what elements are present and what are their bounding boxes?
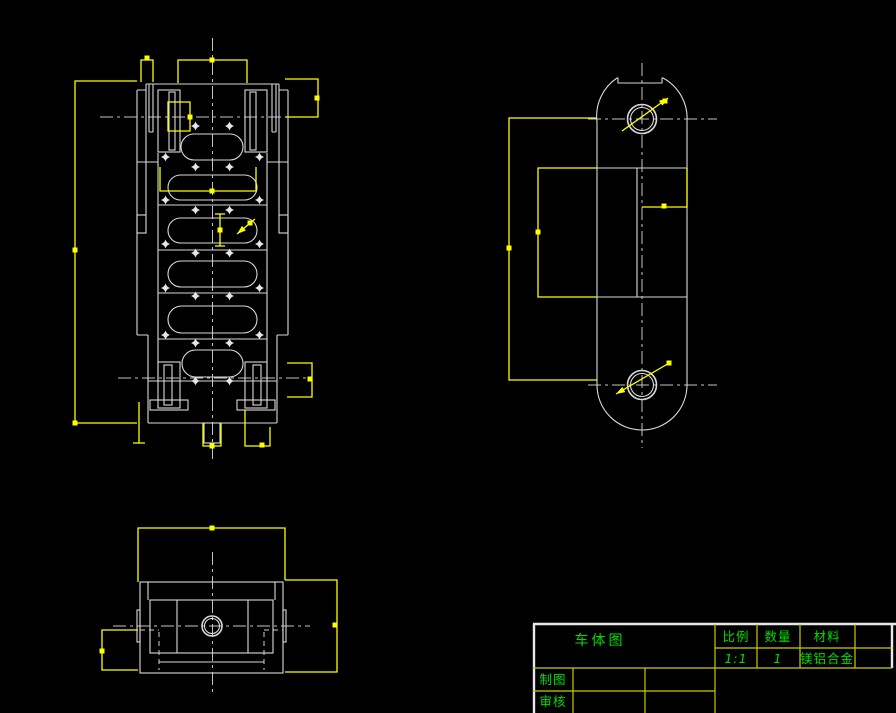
hole-marker[interactable] — [255, 196, 264, 205]
grip-handle[interactable] — [210, 444, 215, 449]
hole-marker[interactable] — [255, 331, 264, 340]
hole-marker[interactable] — [191, 163, 200, 172]
grip-handle[interactable] — [315, 96, 320, 101]
hole-marker[interactable] — [225, 163, 234, 172]
hole-marker[interactable] — [161, 284, 170, 293]
leader-arrowhead — [616, 387, 625, 394]
hole-marker[interactable] — [161, 196, 170, 205]
grip-handle[interactable] — [100, 649, 105, 654]
grip-handle[interactable] — [667, 361, 672, 366]
scale-value[interactable]: 1:1 — [724, 651, 747, 666]
grip-handle[interactable] — [662, 204, 667, 209]
hole-marker[interactable] — [161, 240, 170, 249]
grip-handle[interactable] — [188, 115, 193, 120]
grip-handle[interactable] — [210, 526, 215, 531]
hole-marker[interactable] — [225, 206, 234, 215]
hole-marker[interactable] — [161, 331, 170, 340]
material-value[interactable]: 镁铝合金 — [800, 651, 854, 666]
grip-handle[interactable] — [73, 421, 78, 426]
grip-handle[interactable] — [210, 189, 215, 194]
side-view[interactable] — [509, 63, 717, 448]
scale-label: 比例 — [722, 629, 749, 644]
cad-model-space[interactable]: 车体图 比例 数量 材料 1:1 1 镁铝合金 制图 审核 — [0, 0, 896, 713]
drafter-label: 制图 — [539, 672, 566, 687]
hole-marker[interactable] — [191, 122, 200, 131]
bottom-centerlines — [113, 552, 310, 696]
hole-marker[interactable] — [255, 240, 264, 249]
grip-handle[interactable] — [210, 58, 215, 63]
radius-leaders[interactable] — [237, 98, 671, 394]
grip-handle[interactable] — [507, 246, 512, 251]
grip-handle[interactable] — [73, 248, 78, 253]
front-view[interactable] — [75, 38, 318, 462]
grip-handle[interactable] — [218, 228, 223, 233]
hole-marker[interactable] — [191, 339, 200, 348]
checker-label: 审核 — [539, 694, 566, 709]
hole-marker[interactable] — [255, 153, 264, 162]
hole-marker[interactable] — [161, 153, 170, 162]
grip-handle[interactable] — [145, 56, 150, 61]
grip-handle[interactable] — [308, 377, 313, 382]
title-block[interactable]: 车体图 比例 数量 材料 1:1 1 镁铝合金 制图 审核 — [533, 624, 896, 713]
grip-handle[interactable] — [536, 230, 541, 235]
material-label: 材料 — [813, 629, 840, 644]
grip-handle[interactable] — [260, 443, 265, 448]
hole-marker[interactable] — [191, 206, 200, 215]
drawing-title[interactable]: 车体图 — [575, 632, 626, 649]
hole-marker[interactable] — [225, 122, 234, 131]
grip-handle[interactable] — [663, 99, 668, 104]
side-selected-entities[interactable] — [509, 118, 687, 380]
selection-grips[interactable] — [73, 56, 672, 654]
bottom-view[interactable] — [102, 528, 337, 696]
quantity-value[interactable]: 1 — [774, 651, 783, 666]
hole-marker[interactable] — [255, 284, 264, 293]
bottom-body-geometry[interactable] — [137, 582, 286, 673]
leader-line[interactable] — [616, 362, 671, 394]
grip-handle[interactable] — [333, 623, 338, 628]
hole-marker[interactable] — [225, 339, 234, 348]
quantity-label: 数量 — [764, 629, 791, 644]
cad-canvas[interactable]: 车体图 比例 数量 材料 1:1 1 镁铝合金 制图 审核 — [0, 0, 896, 713]
grip-handle[interactable] — [248, 221, 253, 226]
